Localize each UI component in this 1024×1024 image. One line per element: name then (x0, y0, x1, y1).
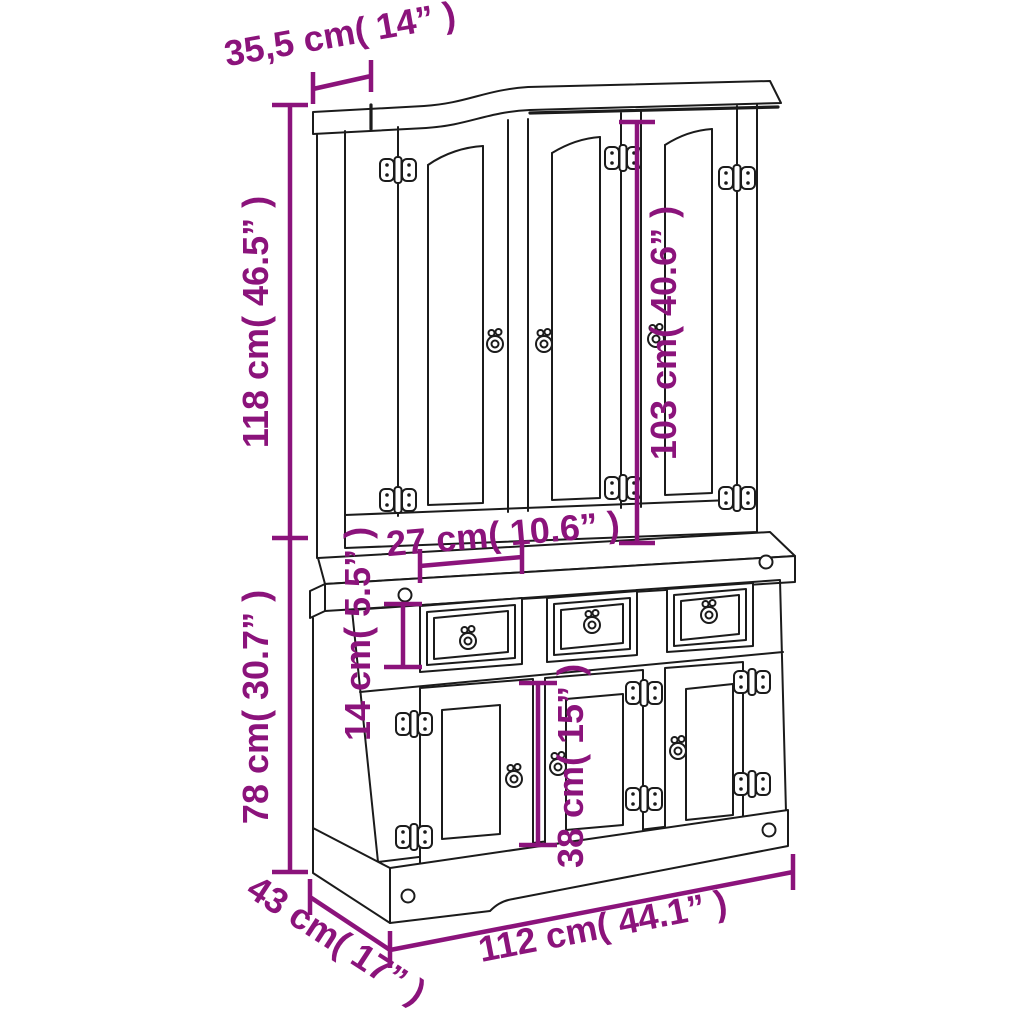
dim-top-depth: 35,5 cm( 14” ) (221, 0, 459, 104)
hinge-icon (719, 165, 755, 191)
peg-icon (402, 890, 415, 903)
hinge-icon (380, 157, 416, 183)
hinge-icon (380, 487, 416, 513)
hutch-stiles (398, 106, 737, 516)
hinge-icon (734, 669, 770, 695)
dim-hutch-height-line (272, 105, 308, 538)
dim-hutch-height-label: 118 cm( 46.5” ) (235, 196, 276, 448)
dim-base-door-height-label: 38 cm( 15” ) (550, 664, 591, 868)
dim-drawer-height-label: 14 cm( 5.5” ) (337, 527, 378, 741)
dim-top-depth-label: 35,5 cm( 14” ) (221, 0, 459, 74)
ring-pull-icon (701, 600, 717, 623)
hinge-icon (719, 485, 755, 511)
hinge-icon (734, 771, 770, 797)
hinge-icon (396, 824, 432, 850)
dim-hutch-height: 118 cm( 46.5” ) (235, 105, 308, 538)
product-dimension-image: 35,5 cm( 14” ) 118 cm( 46.5” ) 103 cm( 4… (0, 0, 1024, 1024)
dim-base-height-line (272, 538, 308, 872)
peg-icon (399, 589, 412, 602)
hinge-icon (396, 711, 432, 737)
sideboard-top-left-return (310, 584, 325, 618)
ring-pull-icon (536, 329, 552, 352)
dim-base-height: 78 cm( 30.7” ) (235, 538, 308, 872)
hutch-door-arches (428, 129, 712, 165)
cabinet-dimension-diagram: 35,5 cm( 14” ) 118 cm( 46.5” ) 103 cm( 4… (0, 0, 1024, 1024)
dim-drawer-height-line (384, 604, 422, 667)
peg-icon (760, 556, 773, 569)
peg-icon (763, 824, 776, 837)
dim-top-depth-line (313, 60, 371, 104)
dim-base-height-label: 78 cm( 30.7” ) (235, 590, 276, 824)
ring-pull-icon (460, 626, 476, 649)
dim-hutch-door-height-label: 103 cm( 40.6” ) (643, 206, 684, 460)
ring-pull-icon (506, 764, 522, 787)
ring-pull-icon (584, 610, 600, 633)
hutch-line-art (313, 81, 781, 558)
hinge-icon (626, 680, 662, 706)
hinge-icon (626, 786, 662, 812)
ring-pull-icon (670, 736, 686, 759)
ring-pull-icon (487, 329, 503, 352)
